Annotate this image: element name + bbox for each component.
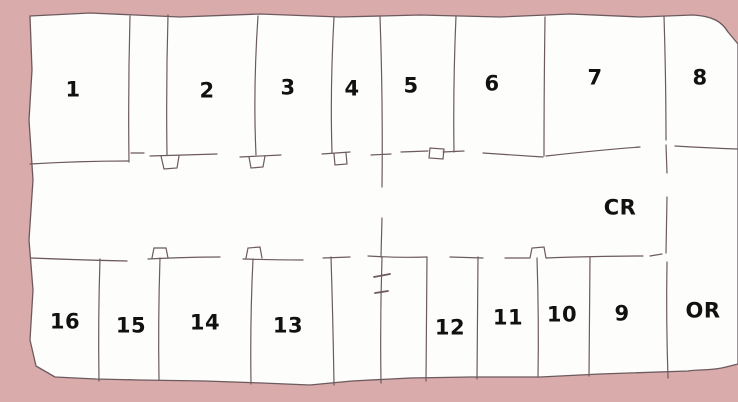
room-label-13: 13 [273, 316, 303, 337]
room-label-10: 10 [547, 305, 577, 326]
room-label-12: 12 [435, 318, 465, 339]
room-label-5: 5 [403, 76, 418, 97]
room-label-4: 4 [344, 79, 359, 100]
room-label-1: 1 [65, 80, 80, 101]
room-label-9: 9 [614, 304, 629, 325]
room-label-3: 3 [280, 78, 295, 99]
room-label-14: 14 [190, 313, 220, 334]
floor-plan-canvas: 1 2 3 4 5 6 7 8 CR OR 16 15 14 13 12 11 … [0, 0, 738, 402]
room-label-2: 2 [199, 81, 214, 102]
corridor-label-cr: CR [604, 198, 637, 219]
room-label-16: 16 [50, 312, 80, 333]
room-label-8: 8 [692, 68, 707, 89]
room-label-11: 11 [493, 308, 523, 329]
room-label-or: OR [685, 301, 720, 322]
room-label-7: 7 [587, 68, 602, 89]
room-label-15: 15 [116, 316, 146, 337]
room-label-6: 6 [484, 74, 499, 95]
